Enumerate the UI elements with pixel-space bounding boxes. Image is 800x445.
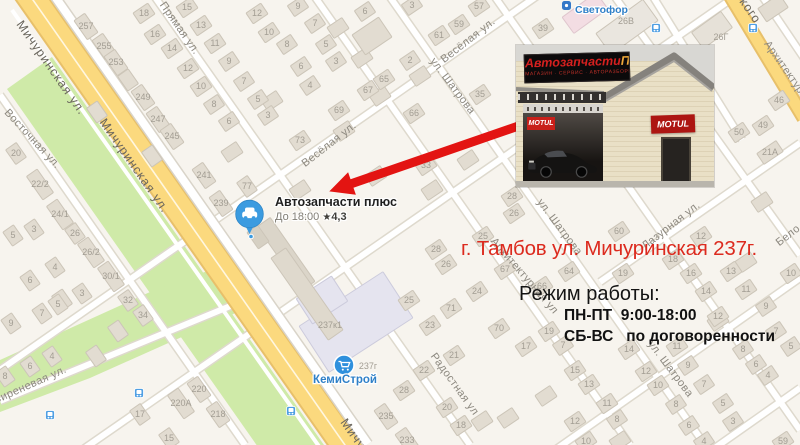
building [497,408,519,429]
house-number-label: 69 [334,105,344,115]
house-number-label: 12 [641,366,651,376]
house-number-label: 255 [96,41,111,51]
house-number-label: 20 [442,402,452,412]
house-number-label: 3 [31,224,36,234]
house-number-label: 3 [333,56,338,66]
building [221,142,243,163]
street-name-label: Весёлая ул. [300,120,359,170]
house-number-label: 3 [730,416,735,426]
house-number-label: 77 [242,181,252,191]
house-number-label: 12 [183,63,193,73]
house-number-label: 65 [379,74,389,84]
house-number-label: 7 [39,308,44,318]
house-number-label: 237к1 [318,320,342,330]
house-number-label: 11 [741,284,750,294]
address-annotation: г. Тамбов ул. Мичуринская 237г. [461,237,757,261]
house-number-label: 8 [284,39,289,49]
pin-rating: 4,3 [331,211,346,223]
house-number-label: 26 [441,259,451,269]
house-number-label: 16 [686,268,696,278]
house-number-label: 253 [108,57,123,67]
house-number-label: 12 [713,311,723,321]
house-number-label: 6 [298,61,303,71]
house-number-label: 24/1 [51,209,69,219]
house-number-label: 8 [673,399,678,409]
bus-stop-icon[interactable] [652,24,661,33]
poster-header-strip [523,104,603,113]
house-number-label: 249 [135,92,150,102]
house-number-label: 26/2 [82,247,100,257]
house-number-label: 10 [653,380,663,390]
house-number-label: 67 [363,85,373,95]
building [457,150,479,171]
building [352,17,392,55]
house-number-label: 10 [786,268,796,278]
house-number-label: 35 [475,89,485,99]
house-number-label: 15 [570,365,580,375]
house-number-label: 28 [399,385,409,395]
house-number-label: 5 [55,299,60,309]
house-number-label: 9 [226,56,231,66]
house-number-label: 24 [472,286,482,296]
house-number-label: 23 [425,320,435,330]
poi-label: Светофор [575,4,628,16]
bus-stop-icon[interactable] [46,411,55,420]
house-number-label: 73 [295,135,305,145]
house-number-label: 26 [509,208,519,218]
house-number-label: 239 [213,198,228,208]
house-number-label: 30/1 [102,271,120,281]
house-number-label: 10 [581,436,591,445]
house-number-label: 4 [307,80,312,90]
house-number-label: 14 [167,43,177,53]
pin-hours: До 18:00 [275,211,319,223]
house-number-label: 6 [27,275,32,285]
house-number-label: 22 [419,365,429,375]
house-number-label: 50 [734,127,744,137]
house-number-label: 59 [454,19,464,29]
schedule-weekdays: ПН-ПТ 9:00-18:00 [564,307,697,325]
house-number-label: 3 [409,0,414,10]
house-number-label: 6 [27,361,32,371]
building [609,431,631,445]
store-sign: АвтозапчастиПЛЮС МАГАЗИН · СЕРВИС · АВТО… [524,52,631,84]
house-number-label: 18 [456,420,466,430]
sign-accent: ПЛЮС [621,53,631,68]
house-number-label: 13 [726,266,736,276]
house-number-label: 28 [507,191,517,201]
house-number-label: 19 [618,268,628,278]
house-number-label: 22/2 [31,179,49,189]
house-number-label: 235 [378,411,393,421]
pin-title: Автозапчасти плюс [275,195,397,209]
house-number-label: 6 [362,6,367,16]
street-name-label: ул. Шатрова [427,56,477,117]
house-number-label: 64 [564,266,574,276]
house-number-label: 18 [139,8,149,18]
house-number-label: 241 [196,170,211,180]
house-number-label: 9 [685,360,690,370]
house-number-label: 237г [359,361,378,371]
motul-logo: MOTUL [527,117,555,130]
house-number-label: 9 [763,301,768,311]
house-number-label: 26Г [714,32,729,42]
bus-stop-icon[interactable] [287,407,296,416]
building [535,386,557,407]
house-number-label: 59 [778,436,788,445]
house-number-label: 10 [264,27,274,37]
house-number-label: 19 [544,326,554,336]
house-number-label: 28 [431,244,441,254]
map-canvas[interactable]: 25725525324924724524123977237к1237г23523… [0,0,800,445]
house-number-label: 26В [618,16,634,26]
house-number-label: 8 [614,414,619,424]
house-number-label: 233 [399,435,414,445]
house-number-label: 60 [614,226,624,236]
house-number-label: 66 [409,108,419,118]
house-number-label: 57 [474,1,484,11]
house-number-label: 21А [762,147,778,157]
house-number-label: 5 [720,398,725,408]
house-number-label: 12 [252,8,262,18]
shopping-cart-icon [334,355,354,375]
house-number-label: 9 [295,1,300,11]
car-silhouette [525,138,601,180]
star-icon: ★ [322,212,331,223]
red-arrow [329,127,517,195]
house-number-label: 257 [78,21,93,31]
sign-title: Автозапчасти [525,54,621,71]
pavement [516,181,714,187]
house-number-label: 32 [123,295,133,305]
sign-subtitle: МАГАЗИН · СЕРВИС · АВТОРАЗБОРКА [525,69,629,79]
poi-label: КемиСтрой [313,374,377,386]
house-number-label: 49 [758,120,768,130]
house-number-label: 13 [584,379,594,389]
house-number-label: 46 [774,95,784,105]
storefront-photo: АвтозапчастиПЛЮС МАГАЗИН · СЕРВИС · АВТО… [516,45,714,187]
house-number-label: 13 [196,20,206,30]
house-number-label: 5 [788,341,793,351]
schedule-weekend: СБ-ВС по договоренности [564,328,775,346]
house-number-label: 8 [211,99,216,109]
house-number-label: 16 [150,29,160,39]
house-number-label: 7 [312,18,317,28]
house-number-label: 5 [10,230,15,240]
house-number-label: 12 [570,416,580,426]
house-number-label: 15 [164,433,174,443]
house-number-label: 220 [191,384,206,394]
house-number-label: 11 [602,398,611,408]
car-poster: MOTUL [523,104,603,181]
house-number-label: 4 [49,351,54,361]
house-number-label: 5 [323,39,328,49]
house-number-label: 10 [196,81,206,91]
house-number-label: 8 [2,371,7,381]
house-number-label: 21 [449,350,459,360]
doorway [661,137,691,187]
location-dot [249,234,254,239]
house-number-label: 2 [407,55,412,65]
house-number-label: 71 [446,303,456,313]
house-number-label: 20 [11,148,21,158]
house-number-label: 61 [434,30,444,40]
house-number-label: 70 [494,323,504,333]
house-number-label: 3 [79,288,84,298]
house-number-label: 7 [241,76,246,86]
brand-logos-strip [518,92,606,103]
house-number-label: 7 [701,379,706,389]
house-number-label: 218 [210,409,225,419]
house-number-label: 17 [521,341,531,351]
house-number-label: 26 [70,228,80,238]
house-number-label: 39 [538,23,548,33]
house-number-label: 6 [753,359,758,369]
house-number-label: 4 [765,370,770,380]
house-number-label: 6 [686,420,691,430]
house-number-label: 247 [150,114,165,124]
house-number-label: 245 [164,131,179,141]
house-number-label: 11 [210,38,219,48]
schedule-title: Режим работы: [519,283,660,306]
house-number-label: 4 [701,436,706,445]
house-number-label: 4 [52,262,57,272]
house-number-label: 25 [404,295,414,305]
pin-callout[interactable]: Автозапчасти плюс До 18:00 ★4,3 [275,195,397,223]
house-number-label: 9 [8,318,13,328]
house-number-label: 6 [226,116,231,126]
bus-stop-icon[interactable] [135,389,144,398]
house-number-label: 34 [138,310,148,320]
house-number-label: 3 [265,110,270,120]
bus-stop-icon[interactable] [749,24,758,33]
motul-wall-sign: MOTUL [651,114,696,134]
house-number-label: 17 [135,409,145,419]
house-number-label: 15 [182,2,192,12]
house-number-label: 220А [170,398,191,408]
house-number-label: 5 [255,94,260,104]
house-number-label: 14 [701,286,711,296]
